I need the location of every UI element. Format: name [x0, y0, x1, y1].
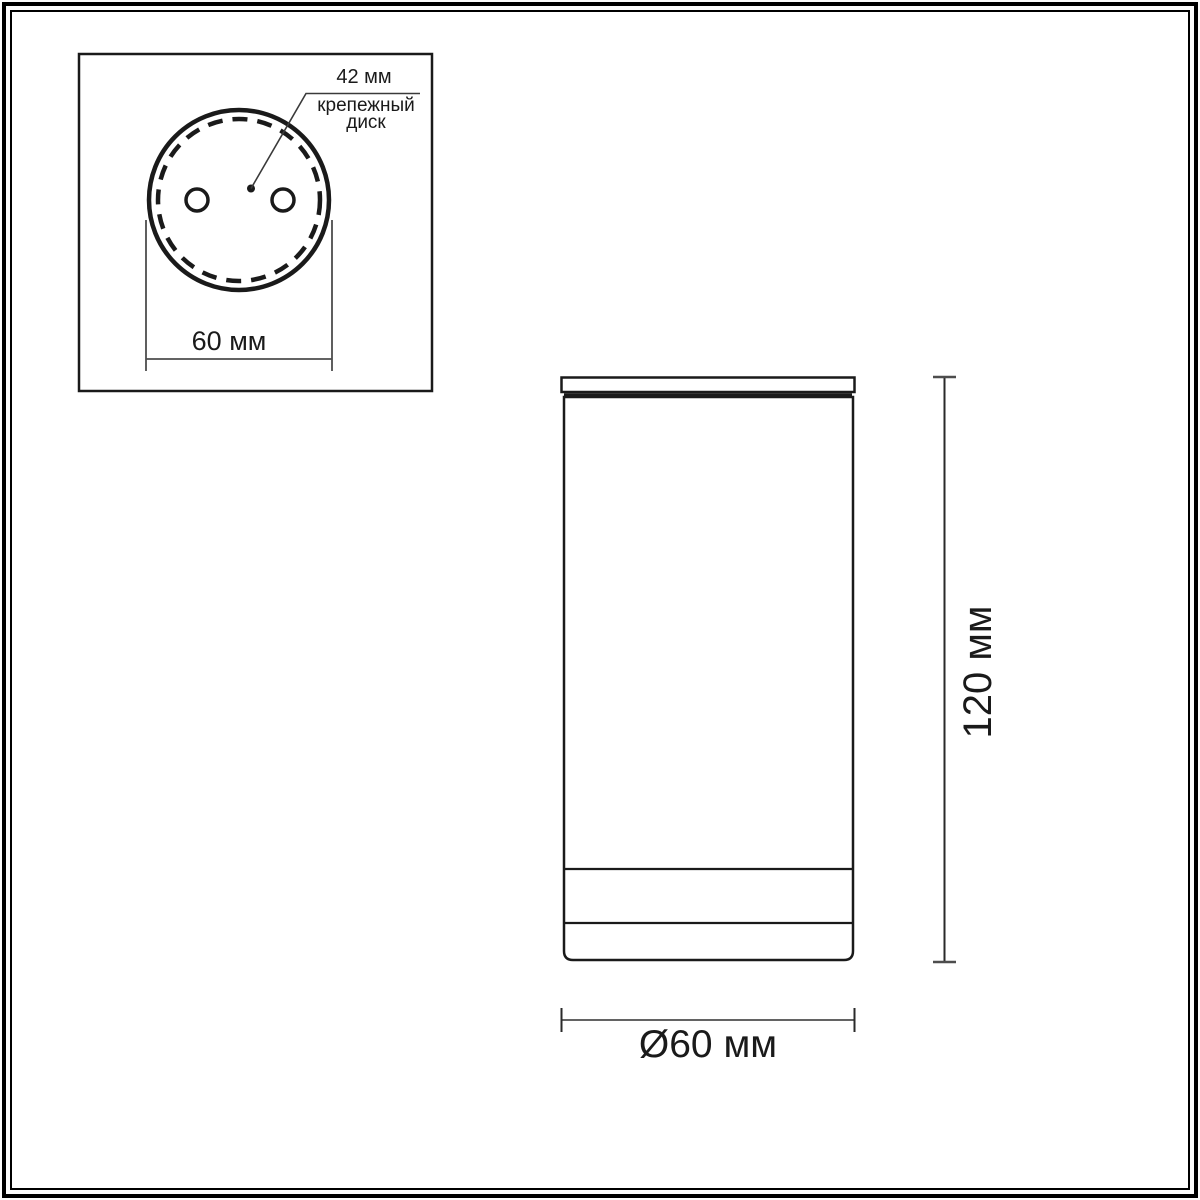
screw-hole-left	[186, 189, 208, 211]
diameter-dimension-label: Ø60 мм	[598, 1023, 818, 1067]
disc-caption: крепежный диск	[296, 97, 436, 131]
base-diameter-label: 60 мм	[159, 326, 299, 357]
line-art-canvas	[0, 0, 1200, 1200]
cylinder-top-cap	[562, 378, 855, 393]
height-dimension-label: 120 мм	[956, 582, 1000, 762]
fixture-base-outline-circle	[149, 110, 329, 290]
screw-hole-right	[272, 189, 294, 211]
drawing-page: 42 мм крепежный диск 60 мм 120 мм Ø60 мм	[0, 0, 1200, 1200]
disc-diameter-label: 42 мм	[294, 66, 434, 89]
cylinder-body-outline	[564, 397, 853, 960]
disc-caption-line2: диск	[296, 114, 436, 131]
